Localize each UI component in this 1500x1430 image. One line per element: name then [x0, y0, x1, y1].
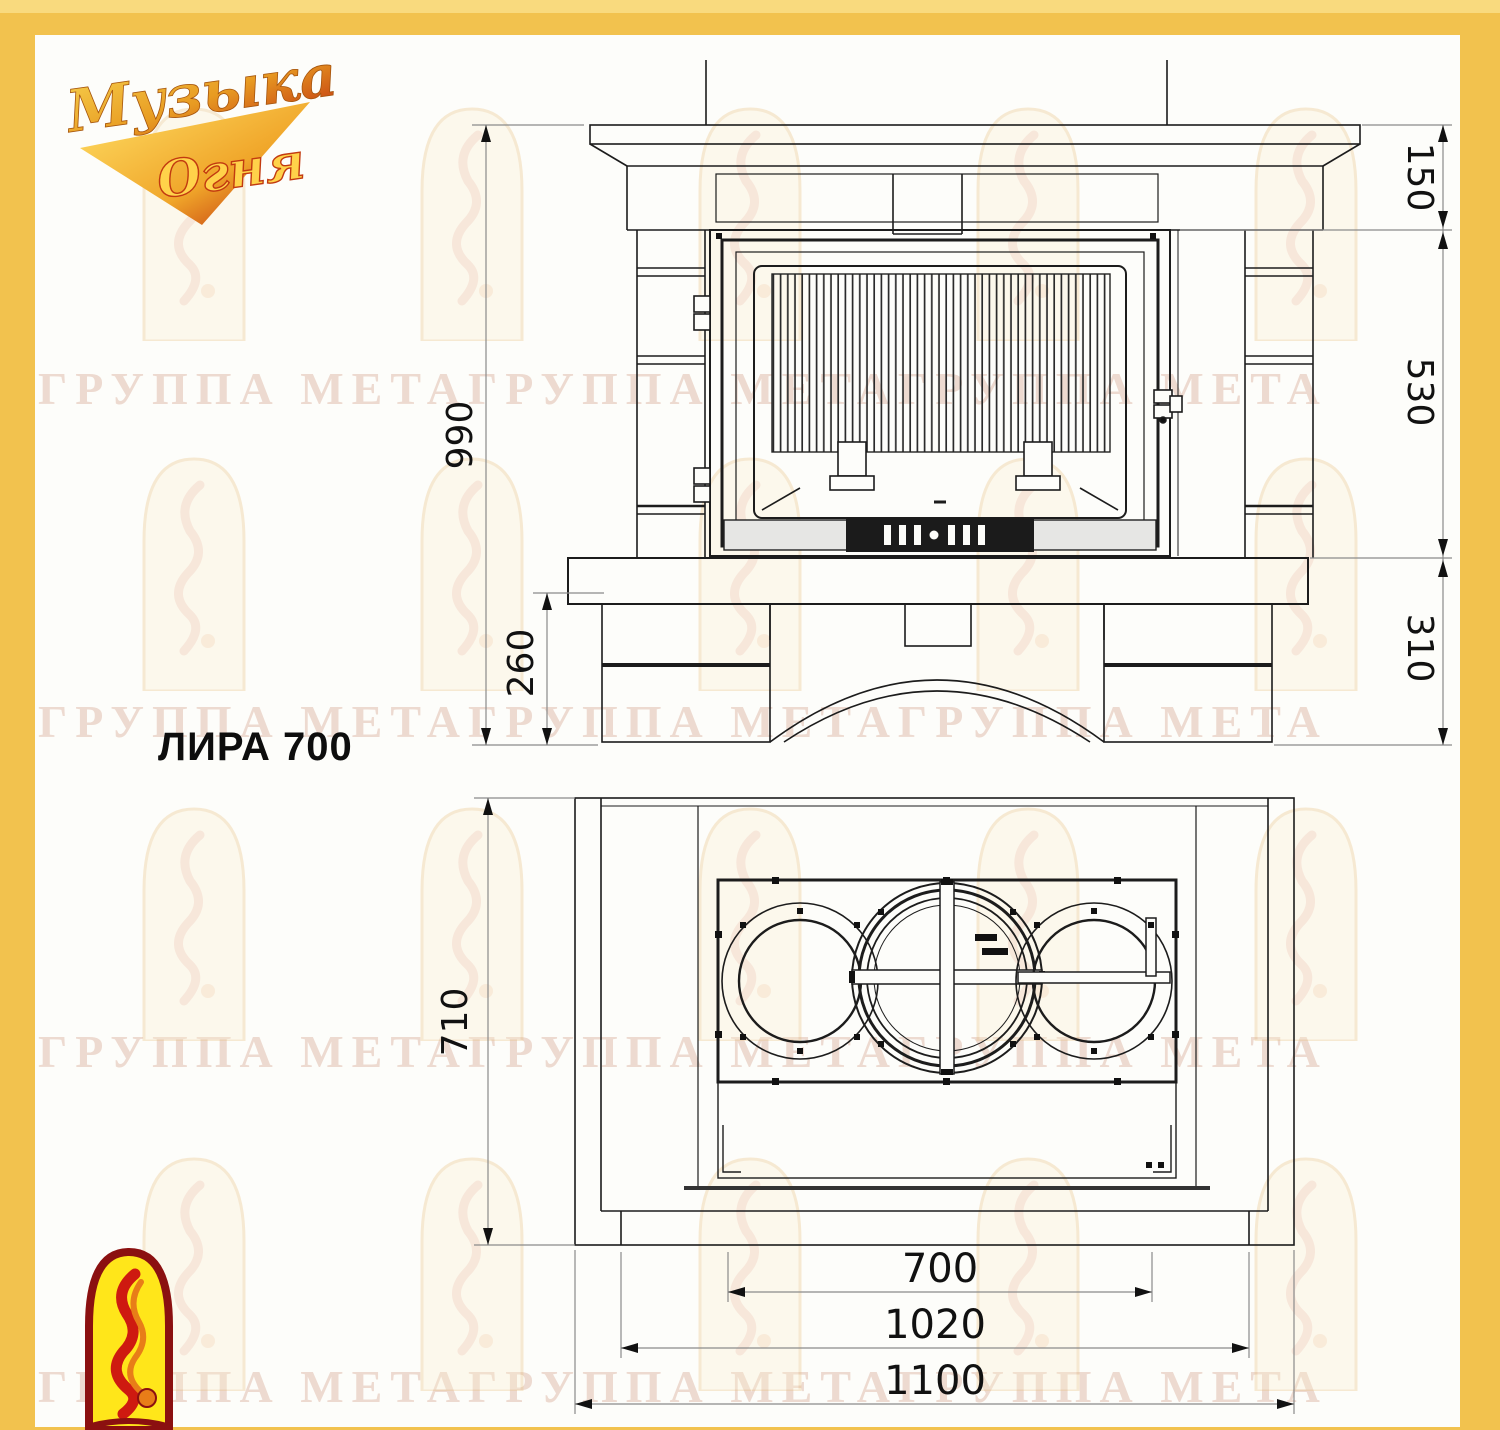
dim-label-700: 700: [902, 1246, 978, 1292]
brand-logo: Музыка Огня: [52, 40, 352, 230]
model-title: ЛИРА 700: [158, 725, 353, 770]
dim-label-1020: 1020: [884, 1302, 986, 1348]
firebox-door: [694, 230, 1182, 556]
firebird-arch-logo: [83, 1240, 175, 1430]
plan-firebox-insert: [715, 877, 1179, 1178]
dim-label-530: 530: [1399, 358, 1440, 427]
frieze-band: [627, 166, 1323, 234]
hearth-slab: [568, 558, 1308, 604]
page: { "title": "ЛИРА 700", "brand": { "logo_…: [0, 0, 1500, 1427]
mantel-shelf: [590, 125, 1360, 166]
base-plinth: [602, 604, 1272, 742]
door-grille: [772, 274, 1110, 452]
dim-label-150: 150: [1399, 143, 1440, 212]
plan-front-slab: [621, 1188, 1249, 1245]
portal-column-left: [637, 230, 705, 558]
dim-label-260: 260: [501, 629, 542, 698]
dim-label-1100: 1100: [884, 1358, 986, 1404]
plan-view: [575, 798, 1294, 1245]
door-hinges: [694, 296, 710, 502]
dim-label-990: 990: [440, 401, 481, 470]
air-vent-strip: [724, 518, 1156, 552]
portal-column-right: [1178, 230, 1313, 558]
front-elevation-view: [568, 60, 1360, 742]
dim-label-710: 710: [435, 988, 476, 1057]
plan-circle-right: [1016, 903, 1172, 1059]
dim-label-310: 310: [1399, 614, 1440, 683]
